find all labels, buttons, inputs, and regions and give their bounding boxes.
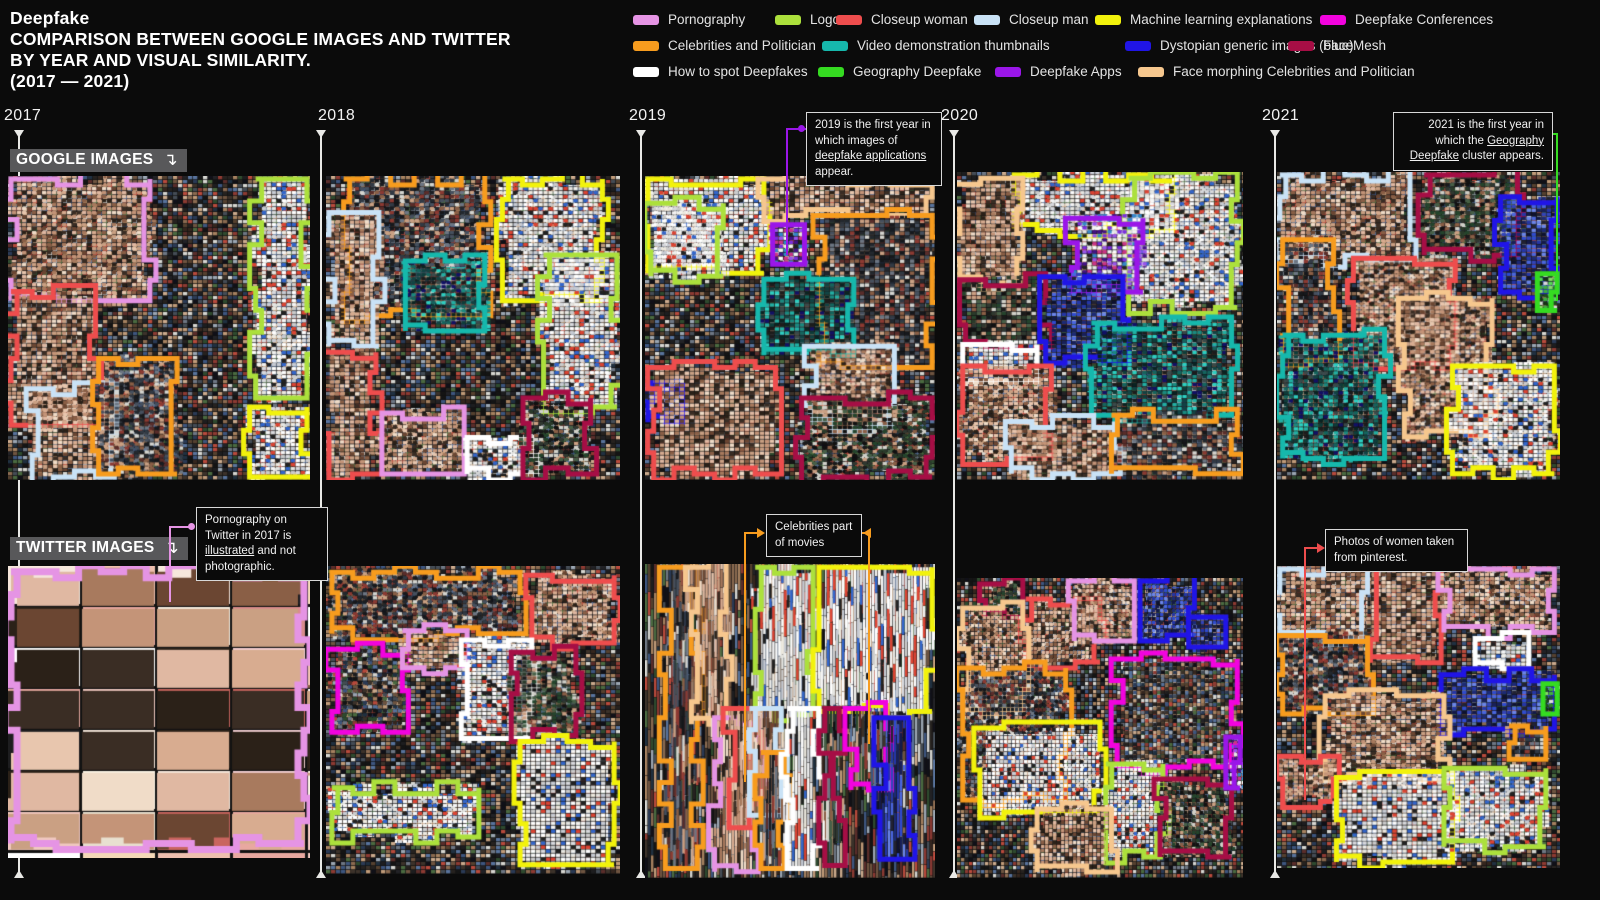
- callout-celebrities-movies: Celebrities part of movies: [766, 514, 862, 557]
- callout-text: Pornography on Twitter in 2017 is: [205, 514, 291, 542]
- callout-pornography: Pornography on Twitter in 2017 is illust…: [196, 507, 328, 581]
- timeline-line-2021: [1274, 130, 1276, 878]
- legend-label: Face morphing Celebrities and Politician: [1173, 64, 1415, 79]
- row-label-twitter-images: TWITTER IMAGES ↴: [10, 537, 188, 560]
- page-title: Deepfake COMPARISON BETWEEN GOOGLE IMAGE…: [10, 8, 511, 92]
- mosaic-twitter-2017: [8, 566, 310, 858]
- mosaic-google-2021: [1277, 172, 1560, 480]
- legend-swatch-pornography: [633, 15, 659, 25]
- callout-text: illustrated: [205, 545, 254, 557]
- callout-text: Photos of women taken from pinterest.: [1334, 536, 1454, 564]
- legend-item-ml-explanations: Machine learning explanations: [1095, 12, 1312, 27]
- callout-text: Celebrities part of movies: [775, 521, 852, 549]
- mosaic-twitter-2021: [1277, 566, 1560, 868]
- legend-label: How to spot Deepfakes: [668, 64, 808, 79]
- legend-label: FaceMesh: [1323, 38, 1386, 53]
- legend-label: Machine learning explanations: [1130, 12, 1312, 27]
- legend-swatch-closeup-man: [974, 15, 1000, 25]
- legend-label: Pornography: [668, 12, 745, 27]
- title-line-4: (2017 — 2021): [10, 71, 511, 92]
- timeline-line-2018: [320, 130, 322, 878]
- legend-swatch-howto: [633, 67, 659, 77]
- year-label-2019: 2019: [629, 107, 666, 125]
- legend-label: Geography Deepfake: [853, 64, 981, 79]
- legend-item-face-morphing: Face morphing Celebrities and Politician: [1138, 64, 1415, 79]
- callout-deepfake-apps: 2019 is the first year in which images o…: [806, 112, 942, 186]
- callout-text: cluster appears.: [1459, 150, 1544, 162]
- mosaic-twitter-2019: [645, 564, 935, 878]
- legend-swatch-logos: [775, 15, 801, 25]
- legend-swatch-video-demos: [822, 41, 848, 51]
- mosaic-google-2019: [645, 176, 935, 480]
- legend-item-howto: How to spot Deepfakes: [633, 64, 808, 79]
- legend-swatch-closeup-woman: [836, 15, 862, 25]
- timeline-line-2019: [640, 130, 642, 878]
- timeline-line-2020: [953, 130, 955, 878]
- corner-down-arrow-icon: ↴: [165, 541, 180, 555]
- deepfake-comparison-infographic: Deepfake COMPARISON BETWEEN GOOGLE IMAGE…: [0, 0, 1600, 900]
- mosaic-twitter-2020: [957, 578, 1243, 878]
- mosaic-google-2017: [8, 176, 310, 480]
- callout-pinterest: Photos of women taken from pinterest.: [1325, 529, 1468, 572]
- legend-item-facemesh: FaceMesh: [1288, 38, 1386, 53]
- callout-text: deepfake applications: [815, 150, 926, 162]
- legend-item-conferences: Deepfake Conferences: [1320, 12, 1493, 27]
- legend-item-closeup-man: Closeup man: [974, 12, 1089, 27]
- legend-label: Deepfake Conferences: [1355, 12, 1493, 27]
- year-label-2020: 2020: [941, 107, 978, 125]
- corner-down-arrow-icon: ↴: [163, 153, 178, 167]
- legend-item-celebrities: Celebrities and Politician: [633, 38, 816, 53]
- title-line-1: Deepfake: [10, 8, 511, 29]
- legend-label: Deepfake Apps: [1030, 64, 1122, 79]
- year-label-2021: 2021: [1262, 107, 1299, 125]
- legend-label: Video demonstration thumbnails: [857, 38, 1050, 53]
- mosaic-google-2020: [957, 172, 1243, 480]
- callout-text: appear.: [815, 166, 853, 178]
- callout-text: 2019 is the first year in which images o…: [815, 119, 931, 147]
- mosaic-google-2018: [326, 176, 620, 480]
- legend-swatch-ml-explanations: [1095, 15, 1121, 25]
- legend-swatch-geography: [818, 67, 844, 77]
- row-label-google-images: GOOGLE IMAGES ↴: [10, 149, 187, 172]
- legend-item-closeup-woman: Closeup woman: [836, 12, 968, 27]
- row-label-google-text: GOOGLE IMAGES: [16, 151, 153, 169]
- legend-swatch-conferences: [1320, 15, 1346, 25]
- legend-item-geography: Geography Deepfake: [818, 64, 981, 79]
- legend-swatch-apps: [995, 67, 1021, 77]
- year-label-2018: 2018: [318, 107, 355, 125]
- legend-swatch-face-morphing: [1138, 67, 1164, 77]
- callout-geography: 2021 is the first year in which the Geog…: [1393, 112, 1553, 171]
- legend-swatch-dystopian: [1125, 41, 1151, 51]
- legend-item-pornography: Pornography: [633, 12, 745, 27]
- mosaic-twitter-2018: [326, 566, 620, 874]
- legend-item-video-demos: Video demonstration thumbnails: [822, 38, 1050, 53]
- row-label-twitter-text: TWITTER IMAGES: [16, 539, 155, 557]
- legend-item-apps: Deepfake Apps: [995, 64, 1122, 79]
- year-label-2017: 2017: [4, 107, 41, 125]
- legend-label: Closeup woman: [871, 12, 968, 27]
- legend-swatch-facemesh: [1288, 41, 1314, 51]
- legend-label: Closeup man: [1009, 12, 1089, 27]
- legend-swatch-celebrities: [633, 41, 659, 51]
- title-line-2: COMPARISON BETWEEN GOOGLE IMAGES AND TWI…: [10, 29, 511, 50]
- title-line-3: BY YEAR AND VISUAL SIMILARITY.: [10, 50, 511, 71]
- legend-label: Celebrities and Politician: [668, 38, 816, 53]
